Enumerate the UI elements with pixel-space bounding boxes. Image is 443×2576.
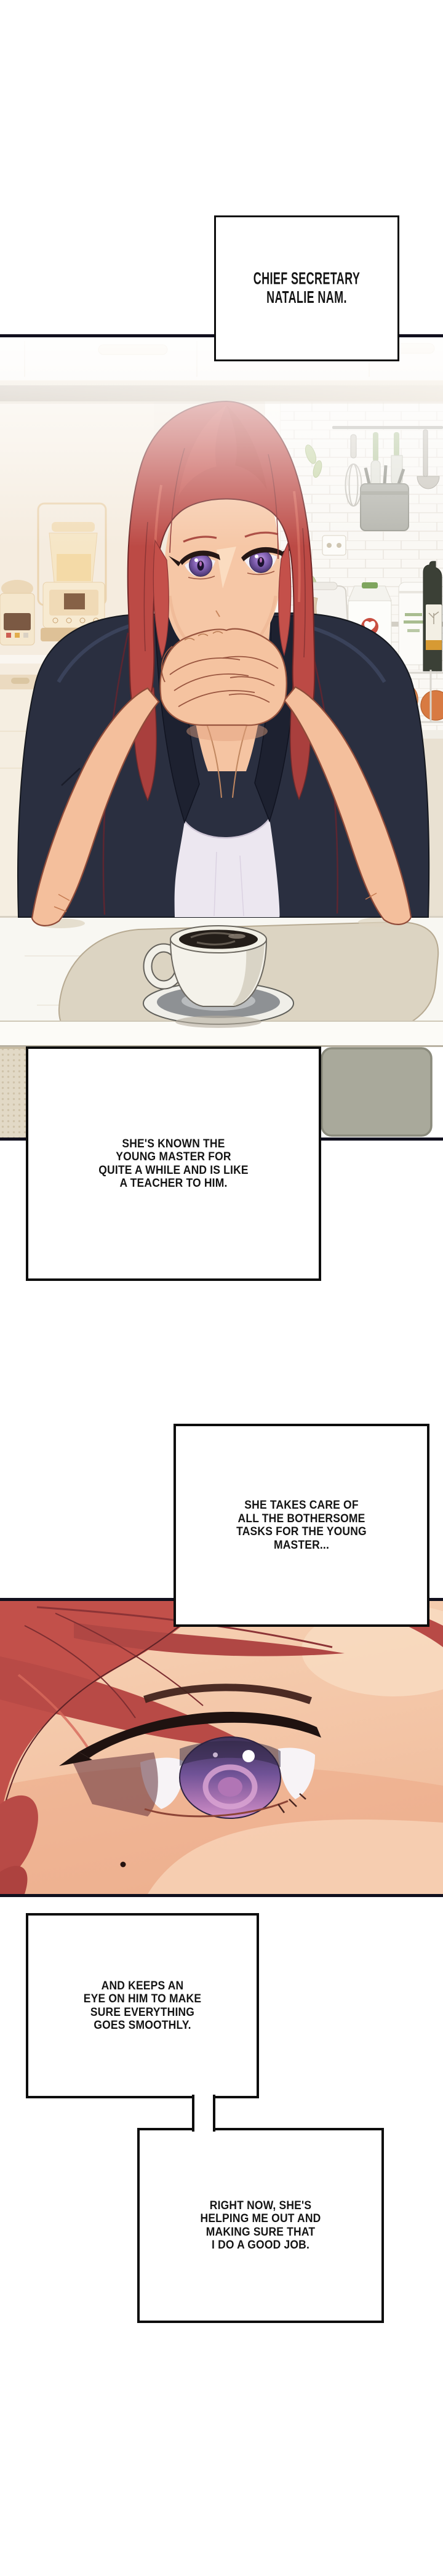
- caption-line: SHE TAKES CARE OF: [186, 1499, 417, 1512]
- caption-line: QUITE A WHILE AND IS LIKE: [40, 1164, 307, 1178]
- narration-box-4: RIGHT NOW, SHE'S HELPING ME OUT AND MAKI…: [137, 2128, 384, 2323]
- caption-line: AND KEEPS AN: [38, 1980, 247, 1993]
- kitchen-panel: [0, 334, 443, 1141]
- kitchen-panel-art: [0, 337, 443, 1138]
- beauty-mark: [121, 1862, 126, 1868]
- caption-line: TASKS FOR THE YOUNG: [186, 1525, 417, 1539]
- eye-closeup-art: [0, 1601, 443, 1894]
- intro-caption-box: CHIEF SECRETARY NATALIE NAM.: [214, 215, 399, 361]
- caption-line: SURE EVERYTHING: [38, 2006, 247, 2020]
- caption-line: RIGHT NOW, SHE'S: [150, 2199, 372, 2213]
- narration-box-2: SHE TAKES CARE OF ALL THE BOTHERSOME TAS…: [174, 1424, 429, 1627]
- caption-line: MAKING SURE THAT: [150, 2226, 372, 2239]
- caption-text: CHIEF SECRETARY NATALIE NAM.: [241, 270, 372, 307]
- clasped-hands: [160, 629, 286, 725]
- eye-closeup-panel: [0, 1598, 443, 1897]
- caption-text: AND KEEPS AN EYE ON HIM TO MAKE SURE EVE…: [38, 1980, 247, 2032]
- bench: [322, 1048, 431, 1136]
- caption-line: EYE ON HIM TO MAKE: [38, 1992, 247, 2006]
- narration-box-1: SHE'S KNOWN THE YOUNG MASTER FOR QUITE A…: [26, 1046, 321, 1281]
- caption-text: SHE TAKES CARE OF ALL THE BOTHERSOME TAS…: [186, 1499, 417, 1552]
- caption-line: YOUNG MASTER FOR: [40, 1150, 307, 1164]
- caption-line: NATALIE NAM.: [241, 289, 372, 307]
- narration-box-3: AND KEEPS AN EYE ON HIM TO MAKE SURE EVE…: [26, 1913, 259, 2098]
- caption-text: SHE'S KNOWN THE YOUNG MASTER FOR QUITE A…: [40, 1138, 307, 1190]
- caption-connector: [192, 2095, 215, 2132]
- caption-line: I DO A GOOD JOB.: [150, 2239, 372, 2252]
- caption-line: ALL THE BOTHERSOME: [186, 1512, 417, 1526]
- caption-line: MASTER...: [186, 1539, 417, 1552]
- caption-text: RIGHT NOW, SHE'S HELPING ME OUT AND MAKI…: [150, 2199, 372, 2252]
- caption-line: GOES SMOOTHLY.: [38, 2019, 247, 2032]
- blender-display: [64, 593, 85, 609]
- caption-line: HELPING ME OUT AND: [150, 2212, 372, 2226]
- comic-page: CHIEF SECRETARY NATALIE NAM. SHE'S KNOWN…: [0, 0, 443, 2576]
- caption-line: SHE'S KNOWN THE: [40, 1138, 307, 1151]
- caption-line: CHIEF SECRETARY: [241, 270, 372, 288]
- caption-line: A TEACHER TO HIM.: [40, 1177, 307, 1190]
